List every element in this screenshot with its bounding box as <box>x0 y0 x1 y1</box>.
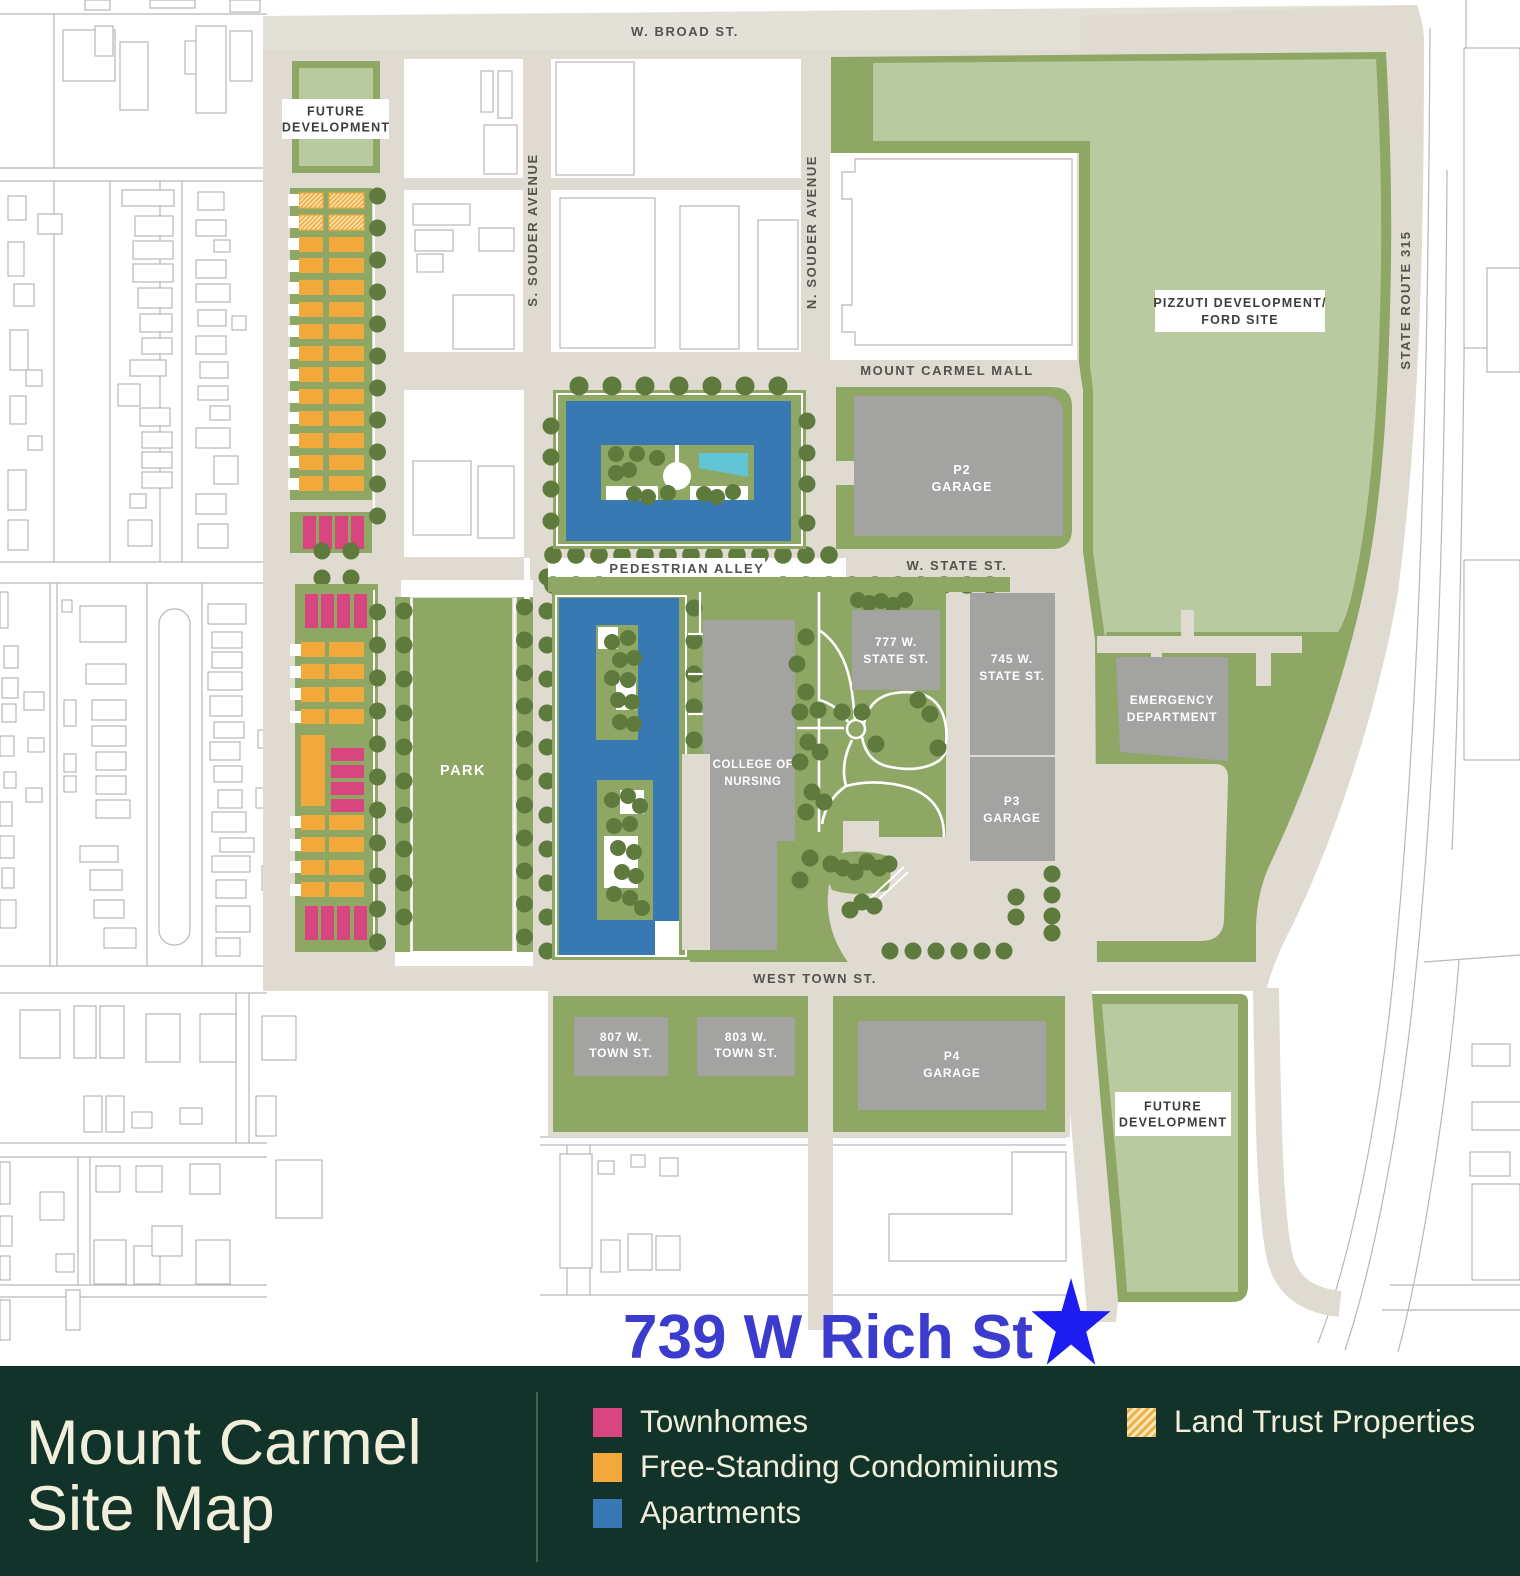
svg-text:GARAGE: GARAGE <box>983 811 1040 825</box>
svg-text:STATE ST.: STATE ST. <box>979 669 1044 683</box>
svg-text:W. STATE ST.: W. STATE ST. <box>906 558 1007 573</box>
svg-text:777 W.: 777 W. <box>875 635 917 649</box>
svg-text:STATE ST.: STATE ST. <box>863 652 928 666</box>
svg-text:PARK: PARK <box>440 763 486 779</box>
svg-text:GARAGE: GARAGE <box>923 1066 980 1080</box>
svg-text:NURSING: NURSING <box>724 776 781 788</box>
svg-text:Townhomes: Townhomes <box>640 1403 808 1439</box>
svg-text:N. SOUDER AVENUE: N. SOUDER AVENUE <box>804 155 819 309</box>
svg-text:EMERGENCY: EMERGENCY <box>1130 693 1215 707</box>
svg-text:Site Map: Site Map <box>26 1474 275 1544</box>
svg-text:Mount Carmel: Mount Carmel <box>26 1408 422 1478</box>
svg-text:TOWN ST.: TOWN ST. <box>714 1046 778 1060</box>
svg-text:PEDESTRIAN ALLEY: PEDESTRIAN ALLEY <box>609 561 764 576</box>
svg-text:739 W Rich St: 739 W Rich St <box>623 1303 1033 1372</box>
svg-text:Apartments: Apartments <box>640 1494 801 1530</box>
svg-text:P4: P4 <box>944 1049 960 1063</box>
svg-text:W. BROAD ST.: W. BROAD ST. <box>631 24 739 39</box>
svg-text:DEPARTMENT: DEPARTMENT <box>1127 710 1217 724</box>
svg-text:803 W.: 803 W. <box>725 1030 767 1044</box>
svg-text:FUTURE: FUTURE <box>307 104 365 118</box>
svg-text:STATE ROUTE 315: STATE ROUTE 315 <box>1398 230 1413 369</box>
svg-text:DEVELOPMENT: DEVELOPMENT <box>282 120 390 134</box>
svg-text:FORD SITE: FORD SITE <box>1201 313 1278 327</box>
svg-text:P3: P3 <box>1004 794 1020 808</box>
svg-text:DEVELOPMENT: DEVELOPMENT <box>1119 1115 1227 1129</box>
svg-text:Land Trust Properties: Land Trust Properties <box>1174 1403 1475 1439</box>
svg-text:Free-Standing Condominiums: Free-Standing Condominiums <box>640 1448 1058 1484</box>
svg-text:GARAGE: GARAGE <box>932 480 993 494</box>
svg-text:COLLEGE OF: COLLEGE OF <box>713 759 794 771</box>
svg-text:P2: P2 <box>953 463 970 477</box>
svg-text:WEST TOWN ST.: WEST TOWN ST. <box>753 971 877 986</box>
svg-text:MOUNT CARMEL MALL: MOUNT CARMEL MALL <box>860 363 1034 378</box>
svg-text:S. SOUDER AVENUE: S. SOUDER AVENUE <box>525 153 540 306</box>
svg-text:PIZZUTI DEVELOPMENT/: PIZZUTI DEVELOPMENT/ <box>1153 296 1326 310</box>
svg-text:FUTURE: FUTURE <box>1144 1099 1202 1113</box>
svg-text:TOWN ST.: TOWN ST. <box>589 1046 653 1060</box>
svg-text:745 W.: 745 W. <box>991 652 1033 666</box>
svg-text:807 W.: 807 W. <box>600 1030 642 1044</box>
